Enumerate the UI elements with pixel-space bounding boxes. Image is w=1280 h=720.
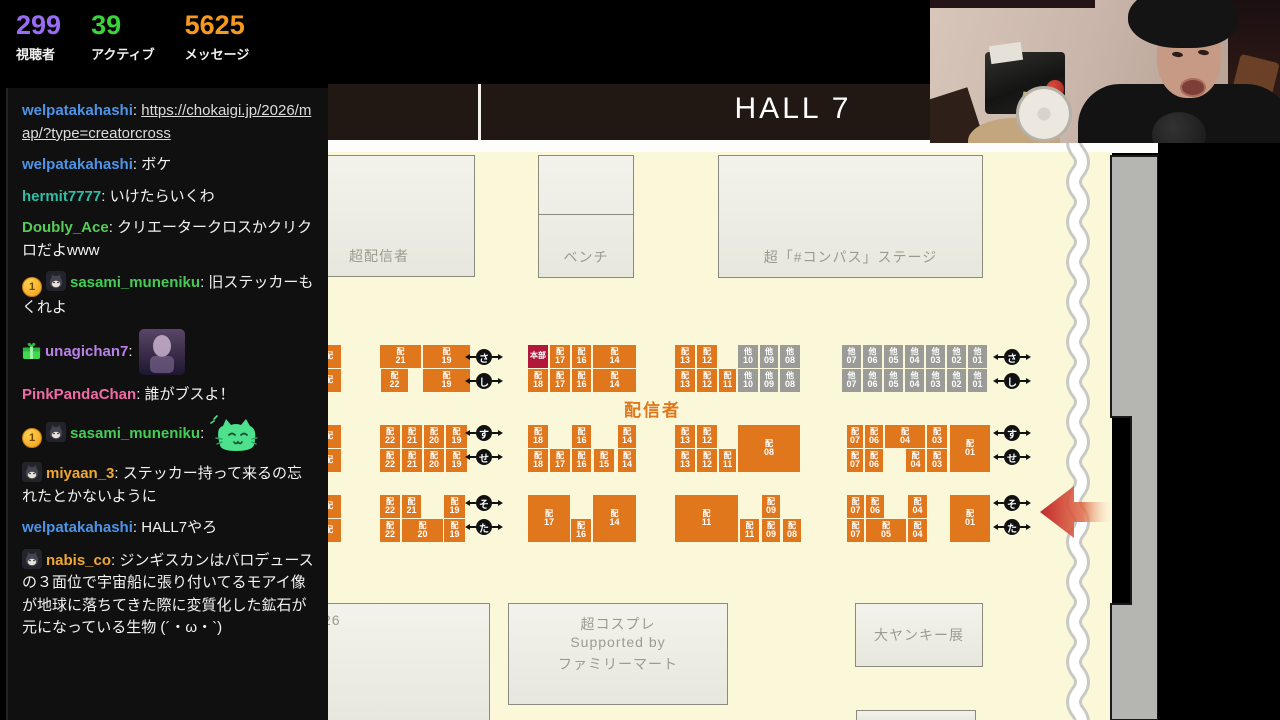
chat-text: HALL7やろ bbox=[141, 519, 217, 536]
area-label: 超「#コンパス」ステージ bbox=[719, 247, 982, 267]
area-大ヤンキー展: 大ヤンキー展 bbox=[855, 603, 983, 667]
booth-配20: 配20 bbox=[402, 519, 443, 542]
booth-配18: 配18 bbox=[528, 425, 548, 448]
booth-配22: 配22 bbox=[380, 495, 400, 518]
booth-配21: 配21 bbox=[402, 449, 422, 472]
aisle-marker-せ: せ bbox=[993, 449, 1031, 465]
area-label: 超配信者 bbox=[349, 246, 409, 266]
booth-配12: 配12 bbox=[697, 449, 717, 472]
booth-他02: 他02 bbox=[947, 345, 966, 368]
booth-他05: 他05 bbox=[884, 369, 903, 392]
cam-fan bbox=[1016, 86, 1072, 142]
booth-他01: 他01 bbox=[968, 345, 987, 368]
booth-配17: 配17 bbox=[550, 449, 570, 472]
wall-shape bbox=[1111, 156, 1158, 720]
chat-username: unagichan7 bbox=[45, 343, 128, 360]
area-超「#コンパス」ステージ: 超「#コンパス」ステージ bbox=[718, 155, 983, 278]
haishinsha-label: 配信者 bbox=[624, 396, 744, 421]
booth-配19: 配19 bbox=[423, 345, 470, 368]
booth-配19: 配19 bbox=[423, 369, 470, 392]
chat-text: 誰がブスよ！ bbox=[145, 386, 235, 403]
chat-message: 1sasami_muneniku: 旧ステッカーもくれよ bbox=[22, 271, 316, 320]
booth-配08: 配08 bbox=[738, 425, 800, 472]
membership-coin-badge: 1 bbox=[22, 428, 42, 448]
area-label: 26 bbox=[328, 612, 341, 628]
aisle-marker-す: す bbox=[993, 425, 1031, 441]
aisle-marker-そ: そ bbox=[993, 495, 1031, 511]
booth-他08: 他08 bbox=[780, 369, 800, 392]
webcam-feed bbox=[930, 0, 1280, 143]
booth-配22: 配22 bbox=[380, 425, 400, 448]
booth-配11: 配11 bbox=[740, 519, 759, 542]
aisle-marker-さ: さ bbox=[465, 349, 503, 365]
booth-配05: 配05 bbox=[866, 519, 906, 542]
booth-配14: 配14 bbox=[618, 425, 636, 448]
booth-他07: 他07 bbox=[842, 369, 861, 392]
booth-本部: 本部 bbox=[528, 345, 548, 368]
aisle-marker-た: た bbox=[993, 519, 1031, 535]
booth-配07: 配07 bbox=[847, 495, 864, 518]
booth-配04: 配04 bbox=[908, 519, 927, 542]
chat-message: hermit7777: いけたらいくわ bbox=[22, 186, 316, 209]
chat-username: welpatakahashi bbox=[22, 519, 133, 536]
chat-username: nabis_co bbox=[46, 552, 111, 569]
chat-panel[interactable]: 299 視聴者 39 アクティブ 5625 メッセージ welpatakahas… bbox=[0, 0, 328, 720]
booth-配06: 配06 bbox=[866, 495, 884, 518]
booth-他03: 他03 bbox=[926, 345, 945, 368]
booth-配16: 配16 bbox=[572, 449, 591, 472]
booth-配13: 配13 bbox=[675, 425, 695, 448]
chat-message: Doubly_Ace: クリエータークロスかクリクロだよwww bbox=[22, 217, 316, 262]
area-label: 超コスプレ bbox=[509, 614, 727, 634]
booth-配16: 配16 bbox=[572, 425, 591, 448]
booth-他06: 他06 bbox=[863, 345, 882, 368]
green-cat-emote bbox=[210, 415, 258, 453]
booth-配07: 配07 bbox=[847, 449, 863, 472]
chat-box[interactable]: welpatakahashi: https://chokaigi.jp/2026… bbox=[6, 88, 328, 720]
area-26: 26 bbox=[328, 603, 490, 720]
booth-配01: 配01 bbox=[950, 495, 990, 542]
stat-viewers: 299 視聴者 bbox=[16, 10, 61, 63]
aisle-marker-さ: さ bbox=[993, 349, 1031, 365]
active-count: 39 bbox=[91, 10, 155, 41]
cat-avatar-icon bbox=[22, 462, 42, 482]
booth-配12: 配12 bbox=[697, 345, 717, 368]
aisle-marker-し: し bbox=[465, 373, 503, 389]
booth-配13: 配13 bbox=[675, 449, 695, 472]
booth-配14: 配14 bbox=[618, 449, 636, 472]
booth-配14: 配14 bbox=[593, 369, 636, 392]
area-超コスプレ: 超コスプレSupported byファミリーマート bbox=[508, 603, 728, 705]
booth-配17: 配17 bbox=[550, 345, 570, 368]
membership-coin-badge: 1 bbox=[22, 277, 42, 297]
booth-他05: 他05 bbox=[884, 345, 903, 368]
chat-message: miyaan_3: ステッカー持って来るの忘れたとかないように bbox=[22, 462, 316, 508]
chat-messages: welpatakahashi: https://chokaigi.jp/2026… bbox=[8, 88, 328, 640]
booth-他04: 他04 bbox=[905, 345, 924, 368]
gift-icon bbox=[22, 341, 41, 360]
booth-配12: 配12 bbox=[697, 369, 717, 392]
cat-avatar-icon bbox=[46, 271, 66, 291]
booth-配22: 配22 bbox=[381, 369, 408, 392]
booth-他08: 他08 bbox=[780, 345, 800, 368]
chat-username: welpatakahashi bbox=[22, 156, 133, 173]
booth-配16: 配16 bbox=[572, 369, 591, 392]
chat-username: PinkPandaChan bbox=[22, 386, 136, 403]
cat-avatar-icon bbox=[22, 549, 42, 569]
booth-配12: 配12 bbox=[697, 425, 717, 448]
chat-message: welpatakahashi: https://chokaigi.jp/2026… bbox=[22, 100, 316, 145]
booth-配07: 配07 bbox=[847, 519, 864, 542]
booth-他03: 他03 bbox=[926, 369, 945, 392]
booth-配11: 配11 bbox=[719, 369, 736, 392]
active-label: アクティブ bbox=[91, 44, 155, 63]
booth-配04: 配04 bbox=[908, 495, 927, 518]
chat-message: welpatakahashi: HALL7やろ bbox=[22, 517, 316, 540]
booth-配06: 配06 bbox=[865, 449, 883, 472]
booth-配: 配 bbox=[328, 345, 341, 368]
viewers-count: 299 bbox=[16, 10, 61, 41]
booth-配20: 配20 bbox=[424, 425, 444, 448]
right-black-area bbox=[1158, 140, 1280, 720]
booth-配11: 配11 bbox=[675, 495, 738, 542]
chat-username: sasami_muneniku bbox=[70, 274, 200, 291]
booth-配18: 配18 bbox=[528, 449, 548, 472]
booth-配19: 配19 bbox=[444, 495, 465, 518]
area-ベンチ: ベンチ bbox=[538, 155, 634, 278]
cam-top-shadow bbox=[930, 0, 1095, 8]
viewers-label: 視聴者 bbox=[16, 44, 61, 63]
booth-他02: 他02 bbox=[947, 369, 966, 392]
booth-他07: 他07 bbox=[842, 345, 861, 368]
booth-他06: 他06 bbox=[863, 369, 882, 392]
booth-配13: 配13 bbox=[675, 369, 695, 392]
booth-配: 配 bbox=[328, 425, 341, 448]
booth-配11: 配11 bbox=[719, 449, 736, 472]
area-超配信者: 超配信者 bbox=[328, 155, 475, 277]
booth-配22: 配22 bbox=[380, 449, 400, 472]
booth-配08: 配08 bbox=[783, 519, 801, 542]
booth-配: 配 bbox=[328, 369, 341, 392]
area-label: ファミリーマート bbox=[509, 654, 727, 674]
booth-配13: 配13 bbox=[675, 345, 695, 368]
aisle-marker-し: し bbox=[993, 373, 1031, 389]
chat-message: unagichan7: bbox=[22, 329, 316, 375]
chat-message: 1sasami_muneniku: bbox=[22, 415, 316, 453]
booth-配16: 配16 bbox=[571, 519, 591, 542]
booth-配14: 配14 bbox=[593, 495, 636, 542]
booth-配18: 配18 bbox=[528, 369, 548, 392]
booth-配19: 配19 bbox=[446, 449, 467, 472]
messages-label: メッセージ bbox=[185, 44, 250, 63]
booth-他10: 他10 bbox=[738, 369, 758, 392]
chat-message: welpatakahashi: ボケ bbox=[22, 154, 316, 177]
booth-他01: 他01 bbox=[968, 369, 987, 392]
booth-他10: 他10 bbox=[738, 345, 758, 368]
booth-配03: 配03 bbox=[927, 425, 947, 448]
hall-title: HALL 7 bbox=[663, 92, 923, 126]
booth-配: 配 bbox=[328, 449, 341, 472]
booth-配09: 配09 bbox=[762, 519, 780, 542]
chat-text: いけたらいくわ bbox=[110, 188, 215, 205]
booth-配17: 配17 bbox=[528, 495, 570, 542]
aisle-marker-せ: せ bbox=[465, 449, 503, 465]
area-block bbox=[856, 710, 976, 720]
chat-message: PinkPandaChan: 誰がブスよ！ bbox=[22, 384, 316, 407]
chat-text: ボケ bbox=[141, 156, 171, 173]
chat-username: sasami_muneniku bbox=[70, 425, 200, 442]
chat-username: welpatakahashi bbox=[22, 102, 133, 119]
booth-配07: 配07 bbox=[847, 425, 863, 448]
booth-配04: 配04 bbox=[906, 449, 925, 472]
booth-配04: 配04 bbox=[885, 425, 925, 448]
booth-配21: 配21 bbox=[380, 345, 421, 368]
aisle-marker-す: す bbox=[465, 425, 503, 441]
map-header-bar-left bbox=[328, 84, 478, 140]
booth-配16: 配16 bbox=[572, 345, 591, 368]
booth-配17: 配17 bbox=[550, 369, 570, 392]
area-label: 大ヤンキー展 bbox=[856, 625, 982, 645]
booth-配21: 配21 bbox=[402, 495, 421, 518]
chat-username: Doubly_Ace bbox=[22, 219, 109, 236]
area-label: Supported by bbox=[509, 634, 727, 650]
booth-配15: 配15 bbox=[594, 449, 614, 472]
booth-他09: 他09 bbox=[760, 369, 778, 392]
booth-配01: 配01 bbox=[950, 425, 990, 472]
aisle-marker-た: た bbox=[465, 519, 503, 535]
booth-配09: 配09 bbox=[762, 495, 780, 518]
chat-message: nabis_co: ジンギスカンはパロデュースの３面位で宇宙船に張り付いてるモア… bbox=[22, 549, 316, 640]
stream-stats: 299 視聴者 39 アクティブ 5625 メッセージ bbox=[16, 10, 249, 63]
booth-配14: 配14 bbox=[593, 345, 636, 368]
cat-avatar-icon bbox=[46, 422, 66, 442]
chat-username: hermit7777 bbox=[22, 188, 101, 205]
booth-配19: 配19 bbox=[444, 519, 465, 542]
booth-配19: 配19 bbox=[446, 425, 467, 448]
messages-count: 5625 bbox=[185, 10, 250, 41]
aisle-marker-そ: そ bbox=[465, 495, 503, 511]
chat-username: miyaan_3 bbox=[46, 465, 114, 482]
booth-配: 配 bbox=[328, 519, 341, 542]
booth-他09: 他09 bbox=[760, 345, 778, 368]
booth-配21: 配21 bbox=[402, 425, 422, 448]
booth-配06: 配06 bbox=[865, 425, 883, 448]
booth-配22: 配22 bbox=[380, 519, 400, 542]
booth-配20: 配20 bbox=[424, 449, 444, 472]
stat-active: 39 アクティブ bbox=[91, 10, 155, 63]
person-mouth bbox=[1180, 78, 1206, 97]
booth-配03: 配03 bbox=[927, 449, 947, 472]
booth-他04: 他04 bbox=[905, 369, 924, 392]
purple-avatar-emote bbox=[139, 329, 185, 375]
booth-配: 配 bbox=[328, 495, 341, 518]
stat-messages: 5625 メッセージ bbox=[185, 10, 250, 63]
area-label: ベンチ bbox=[539, 247, 633, 267]
